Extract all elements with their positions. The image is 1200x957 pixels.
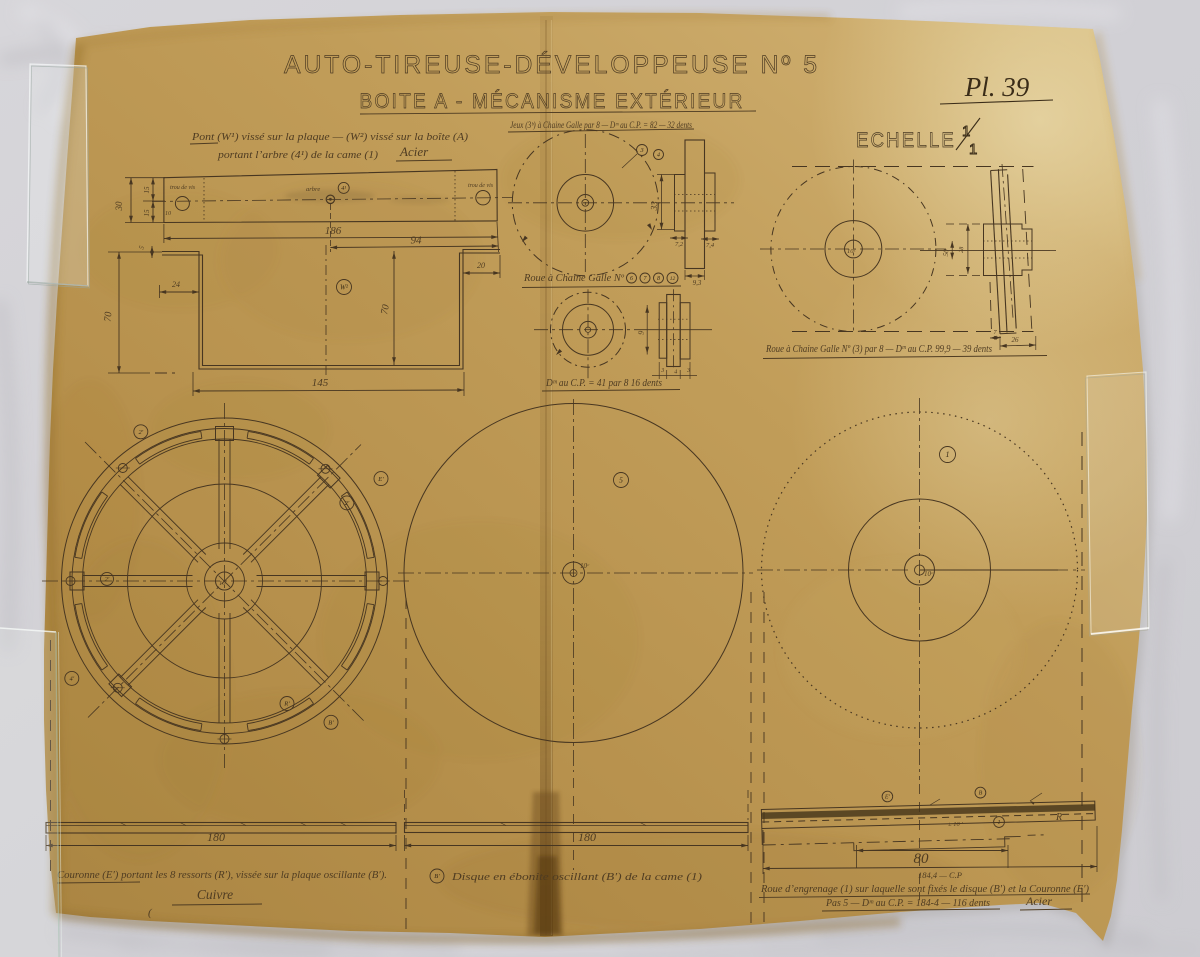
svg-text:10: 10 (165, 211, 171, 217)
svg-text:180: 180 (207, 830, 225, 844)
svg-text:70: 70 (103, 311, 115, 322)
svg-text:5: 5 (619, 476, 623, 485)
svg-text:2′: 2′ (138, 429, 143, 436)
svg-text:Pas 5 — Dᵐ au C.P. = 184-4 — 1: Pas 5 — Dᵐ au C.P. = 184-4 — 116 dents (825, 898, 990, 909)
svg-text:2′: 2′ (345, 500, 350, 507)
svg-text:184,4 — C.P: 184,4 — C.P (918, 870, 962, 880)
svg-text:24: 24 (172, 280, 180, 289)
svg-text:3: 3 (660, 368, 664, 374)
svg-text:33: 33 (649, 200, 660, 211)
svg-text:Couronne (E′) portant les 8 re: Couronne (E′) portant les 8 ressorts (R′… (57, 870, 387, 881)
svg-text:E′: E′ (377, 476, 384, 483)
svg-text:W²: W² (340, 283, 349, 291)
svg-text:8: 8 (657, 276, 660, 282)
svg-text:portant l’arbre (4¹) de la cam: portant l’arbre (4¹) de la came (1) (217, 149, 378, 161)
svg-text:94: 94 (411, 235, 423, 247)
svg-text:Jeux (3ᵇ) à Chaine Galle par 8: Jeux (3ᵇ) à Chaine Galle par 8 — Dᵐ au C… (510, 120, 692, 130)
svg-text:Roue à Chaine Galle Nº: Roue à Chaine Galle Nº (523, 273, 625, 284)
svg-text:15: 15 (143, 209, 151, 217)
svg-text:Roue à Chaine Galle Nº (3) pa: Roue à Chaine Galle Nº (3) par 8 — Dᵐ au… (765, 344, 992, 355)
svg-text:R: R (1055, 812, 1062, 823)
svg-text:186: 186 (325, 225, 342, 237)
svg-text:1: 1 (946, 450, 950, 459)
svg-text:Acier: Acier (399, 144, 429, 159)
svg-text:180: 180 (578, 830, 596, 844)
svg-text:6: 6 (630, 276, 633, 282)
svg-text:Cuivre: Cuivre (197, 887, 233, 902)
svg-text:AUTO-TIREUSE-DÉVELOPPEUSE Nº 5: AUTO-TIREUSE-DÉVELOPPEUSE Nº 5 (284, 50, 820, 79)
svg-text:4′: 4′ (69, 676, 74, 683)
svg-text:2′: 2′ (105, 576, 110, 583)
svg-text:80: 80 (914, 851, 930, 867)
svg-text:145: 145 (312, 377, 329, 389)
svg-text:1: 1 (997, 819, 1000, 826)
svg-text:7,4: 7,4 (706, 242, 715, 249)
svg-text:trou de vis: trou de vis (468, 183, 494, 189)
svg-text:10ᶜ: 10ᶜ (580, 562, 590, 570)
svg-text:70: 70 (379, 304, 392, 316)
svg-text:Pont (W¹) vissé sur la plaque: Pont (W¹) vissé sur la plaque — (W²) vis… (191, 131, 468, 143)
svg-text:9: 9 (636, 330, 645, 335)
svg-text:Acier: Acier (1025, 894, 1052, 908)
svg-text:Pl. 39: Pl. 39 (964, 72, 1030, 102)
svg-text:Dᵐ au C.P. = 41 par 8 16 de: Dᵐ au C.P. = 41 par 8 16 dents (545, 378, 662, 389)
svg-text:± 10 ′: ± 10 ′ (948, 821, 963, 828)
svg-text:30: 30 (114, 201, 124, 212)
svg-text:B: B (979, 791, 983, 797)
svg-text:12: 12 (670, 276, 676, 282)
svg-text:9,3: 9,3 (693, 279, 702, 287)
svg-text:4: 4 (674, 369, 677, 376)
svg-text:B′: B′ (434, 873, 440, 880)
svg-text:50: 50 (942, 248, 951, 256)
svg-text:4: 4 (657, 152, 660, 159)
svg-text:Disque en ébonite oscillant (B: Disque en ébonite oscillant (B′) de la c… (451, 872, 703, 883)
svg-text:BOITE A - MÉCANISME EXTÉRIEUR: BOITE A - MÉCANISME EXTÉRIEUR (360, 88, 745, 113)
svg-text:1: 1 (969, 141, 977, 158)
svg-text:3: 3 (686, 368, 690, 374)
svg-text:B′: B′ (328, 720, 334, 727)
svg-text:ECHELLE: ECHELLE (856, 129, 956, 152)
svg-text:trou de vis: trou de vis (170, 185, 196, 191)
svg-text:E′: E′ (884, 795, 891, 801)
svg-text:1: 1 (962, 123, 970, 140)
svg-text:15: 15 (143, 186, 151, 194)
svg-text:R′: R′ (283, 701, 290, 708)
svg-text:26: 26 (1012, 336, 1020, 344)
svg-text:10ᶜ: 10ᶜ (924, 570, 934, 578)
svg-text:7,2: 7,2 (675, 241, 684, 248)
svg-text:20: 20 (477, 261, 485, 270)
svg-text:28: 28 (959, 247, 966, 254)
